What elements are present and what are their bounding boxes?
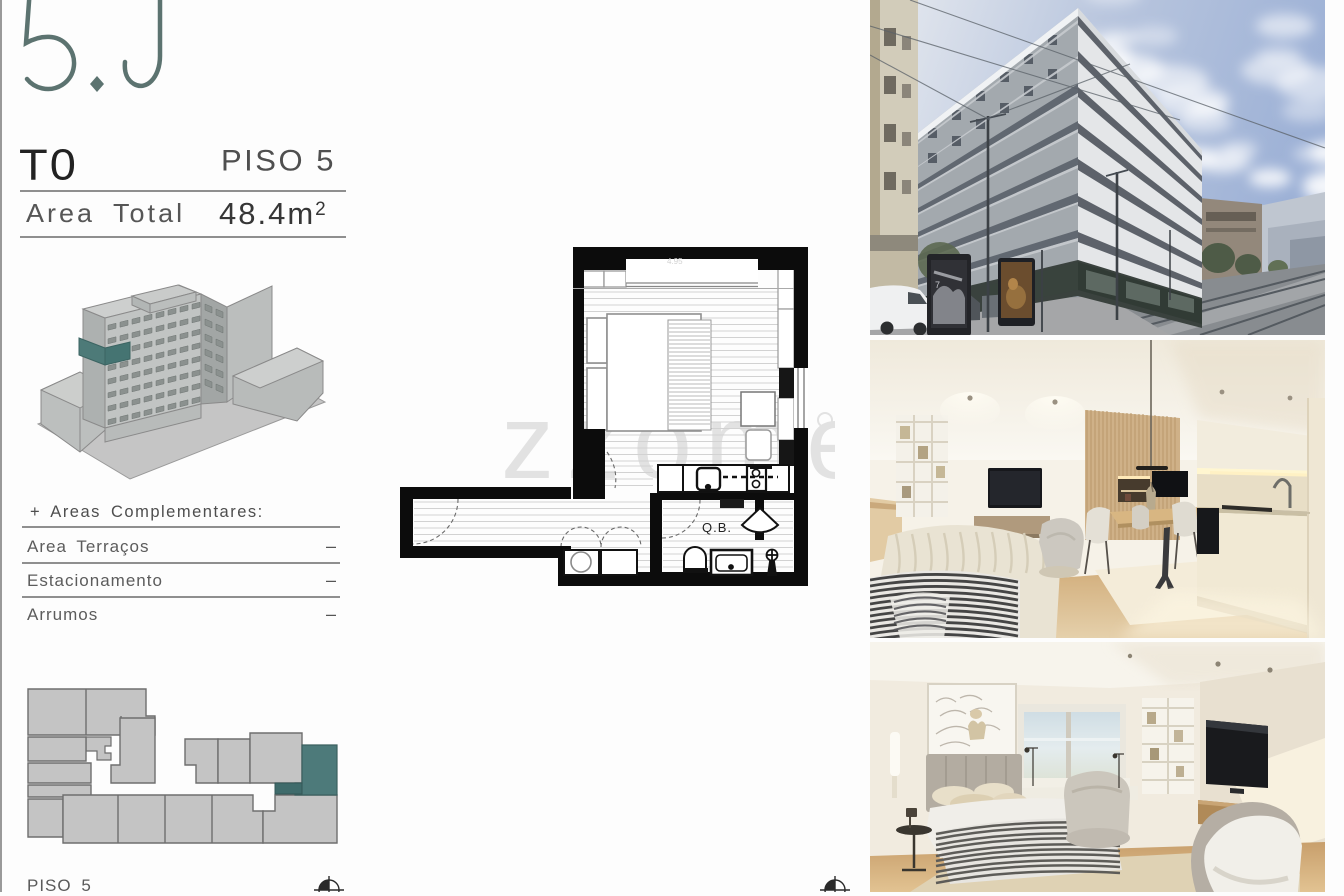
svg-text:Q.B.: Q.B. bbox=[702, 520, 732, 535]
svg-text:7: 7 bbox=[935, 280, 940, 290]
svg-text:4.95: 4.95 bbox=[667, 257, 683, 266]
